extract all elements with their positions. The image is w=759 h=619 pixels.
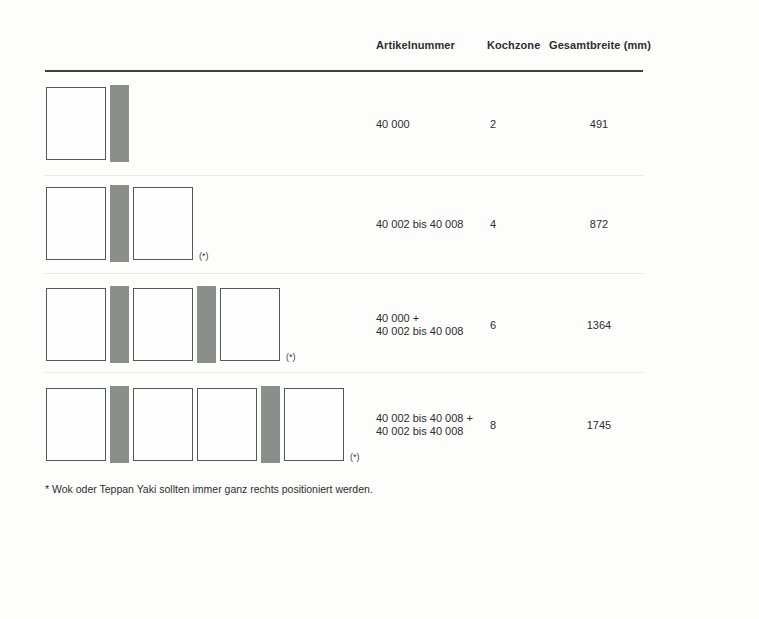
row-separator bbox=[45, 273, 643, 274]
cooktop-panel-module bbox=[220, 288, 280, 361]
gesamtbreite-cell: 872 bbox=[566, 217, 632, 230]
kochzone-cell: 6 bbox=[478, 318, 508, 331]
module-diagram: (*) bbox=[46, 285, 296, 364]
cooktop-panel-module bbox=[197, 388, 257, 461]
row-separator bbox=[45, 175, 643, 176]
module-diagram bbox=[46, 84, 129, 163]
artikelnummer-line: 40 002 bis 40 008 + bbox=[376, 412, 473, 425]
ventilation-strip-module bbox=[261, 386, 280, 463]
footnote-marker: (*) bbox=[286, 352, 296, 362]
table-row: (*) 40 002 bis 40 008 4 872 bbox=[0, 184, 759, 263]
table-row: 40 000 2 491 bbox=[0, 84, 759, 163]
table-row: (*) 40 002 bis 40 008 +40 002 bis 40 008… bbox=[0, 385, 759, 464]
kochzone-cell: 8 bbox=[478, 418, 508, 431]
artikelnummer-line: 40 000 + bbox=[376, 312, 463, 325]
cooktop-panel-module bbox=[46, 87, 106, 160]
cooktop-panel-module bbox=[46, 187, 106, 260]
artikelnummer-cell: 40 000 +40 002 bis 40 008 bbox=[376, 312, 463, 338]
kochzone-cell: 4 bbox=[478, 217, 508, 230]
artikelnummer-line: 40 000 bbox=[376, 117, 410, 130]
cooktop-panel-module bbox=[46, 288, 106, 361]
module-diagram: (*) bbox=[46, 184, 209, 263]
table-row: (*) 40 000 +40 002 bis 40 008 6 1364 bbox=[0, 285, 759, 364]
ventilation-strip-module bbox=[110, 386, 129, 463]
footnote-marker: (*) bbox=[199, 251, 209, 261]
ventilation-strip-module bbox=[197, 286, 216, 363]
artikelnummer-line: 40 002 bis 40 008 bbox=[376, 425, 473, 438]
ventilation-strip-module bbox=[110, 185, 129, 262]
document-page: Artikelnummer Kochzone Gesamtbreite (mm)… bbox=[0, 0, 759, 619]
kochzone-cell: 2 bbox=[478, 117, 508, 130]
column-header-artikelnummer: Artikelnummer bbox=[376, 39, 455, 51]
cooktop-panel-module bbox=[46, 388, 106, 461]
gesamtbreite-cell: 491 bbox=[566, 117, 632, 130]
gesamtbreite-cell: 1364 bbox=[566, 318, 632, 331]
ventilation-strip-module bbox=[110, 85, 129, 162]
row-separator bbox=[45, 372, 643, 373]
artikelnummer-cell: 40 002 bis 40 008 +40 002 bis 40 008 bbox=[376, 412, 473, 438]
artikelnummer-cell: 40 002 bis 40 008 bbox=[376, 217, 463, 230]
footnote: * Wok oder Teppan Yaki sollten immer gan… bbox=[45, 483, 373, 495]
cooktop-panel-module bbox=[284, 388, 344, 461]
ventilation-strip-module bbox=[110, 286, 129, 363]
gesamtbreite-cell: 1745 bbox=[566, 418, 632, 431]
cooktop-panel-module bbox=[133, 288, 193, 361]
artikelnummer-line: 40 002 bis 40 008 bbox=[376, 217, 463, 230]
cooktop-panel-module bbox=[133, 388, 193, 461]
module-diagram: (*) bbox=[46, 385, 360, 464]
artikelnummer-line: 40 002 bis 40 008 bbox=[376, 325, 463, 338]
footnote-marker: (*) bbox=[350, 452, 360, 462]
cooktop-panel-module bbox=[133, 187, 193, 260]
column-header-kochzone: Kochzone bbox=[487, 39, 540, 51]
column-header-gesamtbreite: Gesamtbreite (mm) bbox=[549, 39, 651, 51]
header-rule bbox=[45, 70, 643, 72]
artikelnummer-cell: 40 000 bbox=[376, 117, 410, 130]
